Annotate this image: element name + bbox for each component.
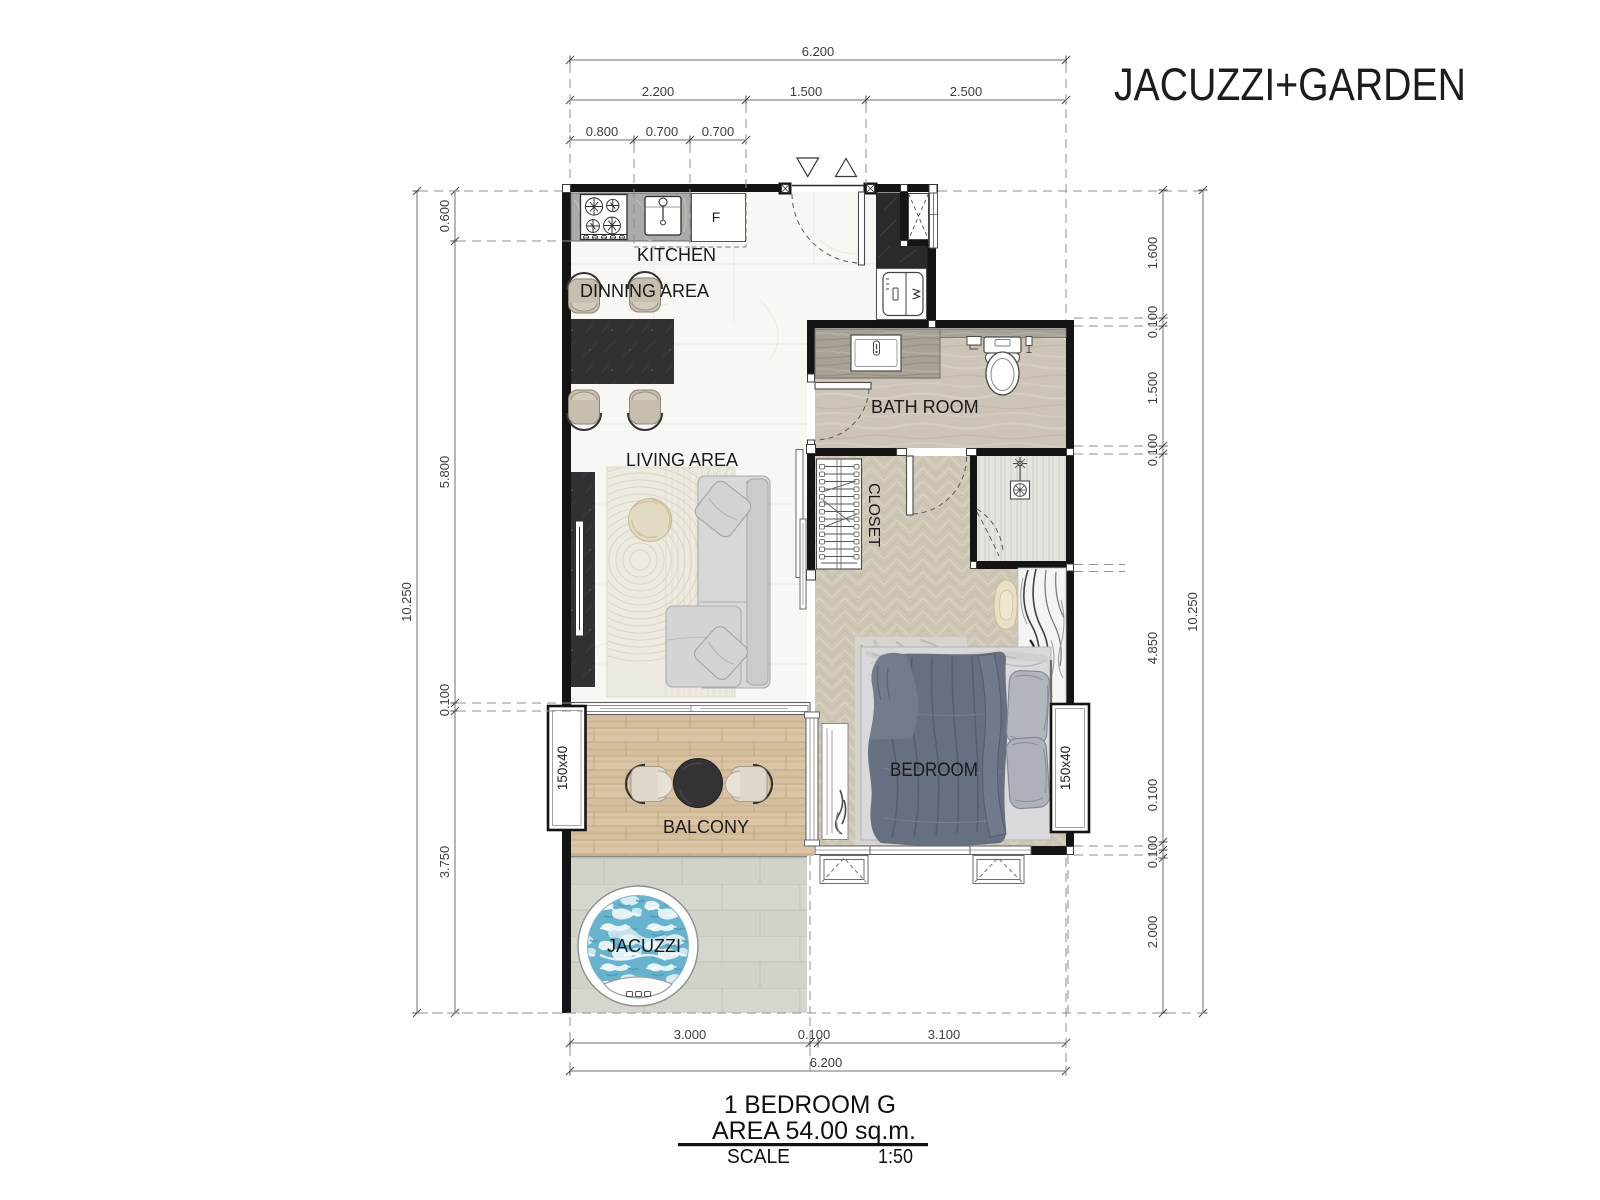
svg-text:JACUZZI+GARDEN: JACUZZI+GARDEN bbox=[1114, 59, 1466, 110]
svg-text:BALCONY: BALCONY bbox=[663, 817, 749, 837]
svg-text:150x40: 150x40 bbox=[1058, 746, 1073, 790]
svg-text:6.200: 6.200 bbox=[802, 44, 835, 59]
svg-text:0.700: 0.700 bbox=[646, 124, 679, 139]
svg-text:F: F bbox=[712, 209, 721, 225]
svg-text:JACUZZI: JACUZZI bbox=[607, 936, 681, 956]
svg-text:SCALE: SCALE bbox=[727, 1146, 790, 1168]
svg-text:1.600: 1.600 bbox=[1145, 237, 1160, 270]
svg-text:BEDROOM: BEDROOM bbox=[890, 760, 978, 781]
svg-text:LIVING AREA: LIVING AREA bbox=[626, 450, 738, 470]
svg-text:2.200: 2.200 bbox=[642, 84, 675, 99]
svg-text:CLOSET: CLOSET bbox=[865, 483, 882, 547]
svg-text:KITCHEN: KITCHEN bbox=[637, 245, 716, 265]
svg-text:0.100: 0.100 bbox=[437, 684, 452, 717]
svg-text:1 BEDROOM G: 1 BEDROOM G bbox=[724, 1091, 896, 1119]
svg-text:0.600: 0.600 bbox=[437, 200, 452, 233]
svg-text:0.100: 0.100 bbox=[1145, 306, 1160, 339]
svg-text:1.500: 1.500 bbox=[1145, 372, 1160, 405]
svg-text:10.250: 10.250 bbox=[399, 582, 414, 622]
svg-text:5.800: 5.800 bbox=[437, 456, 452, 489]
svg-text:0.100: 0.100 bbox=[1145, 836, 1160, 869]
svg-text:3.750: 3.750 bbox=[437, 846, 452, 879]
svg-text:1:50: 1:50 bbox=[878, 1146, 913, 1168]
svg-text:0.100: 0.100 bbox=[1145, 434, 1160, 467]
svg-text:0.800: 0.800 bbox=[586, 124, 619, 139]
svg-text:0.100: 0.100 bbox=[798, 1027, 831, 1042]
svg-text:2.500: 2.500 bbox=[950, 84, 983, 99]
svg-text:10.250: 10.250 bbox=[1185, 592, 1200, 632]
svg-text:6.200: 6.200 bbox=[810, 1055, 843, 1070]
svg-text:3.000: 3.000 bbox=[674, 1027, 707, 1042]
svg-text:1.500: 1.500 bbox=[790, 84, 823, 99]
svg-text:DINNING AREA: DINNING AREA bbox=[580, 281, 709, 301]
svg-text:AREA 54.00 sq.m.: AREA 54.00 sq.m. bbox=[712, 1117, 916, 1145]
svg-text:BATH ROOM: BATH ROOM bbox=[871, 397, 979, 417]
svg-text:0.100: 0.100 bbox=[1145, 779, 1160, 812]
svg-text:4.850: 4.850 bbox=[1145, 632, 1160, 665]
svg-text:2.000: 2.000 bbox=[1145, 916, 1160, 949]
svg-text:3.100: 3.100 bbox=[928, 1027, 961, 1042]
svg-text:150x40: 150x40 bbox=[555, 746, 570, 790]
svg-text:0.700: 0.700 bbox=[702, 124, 735, 139]
